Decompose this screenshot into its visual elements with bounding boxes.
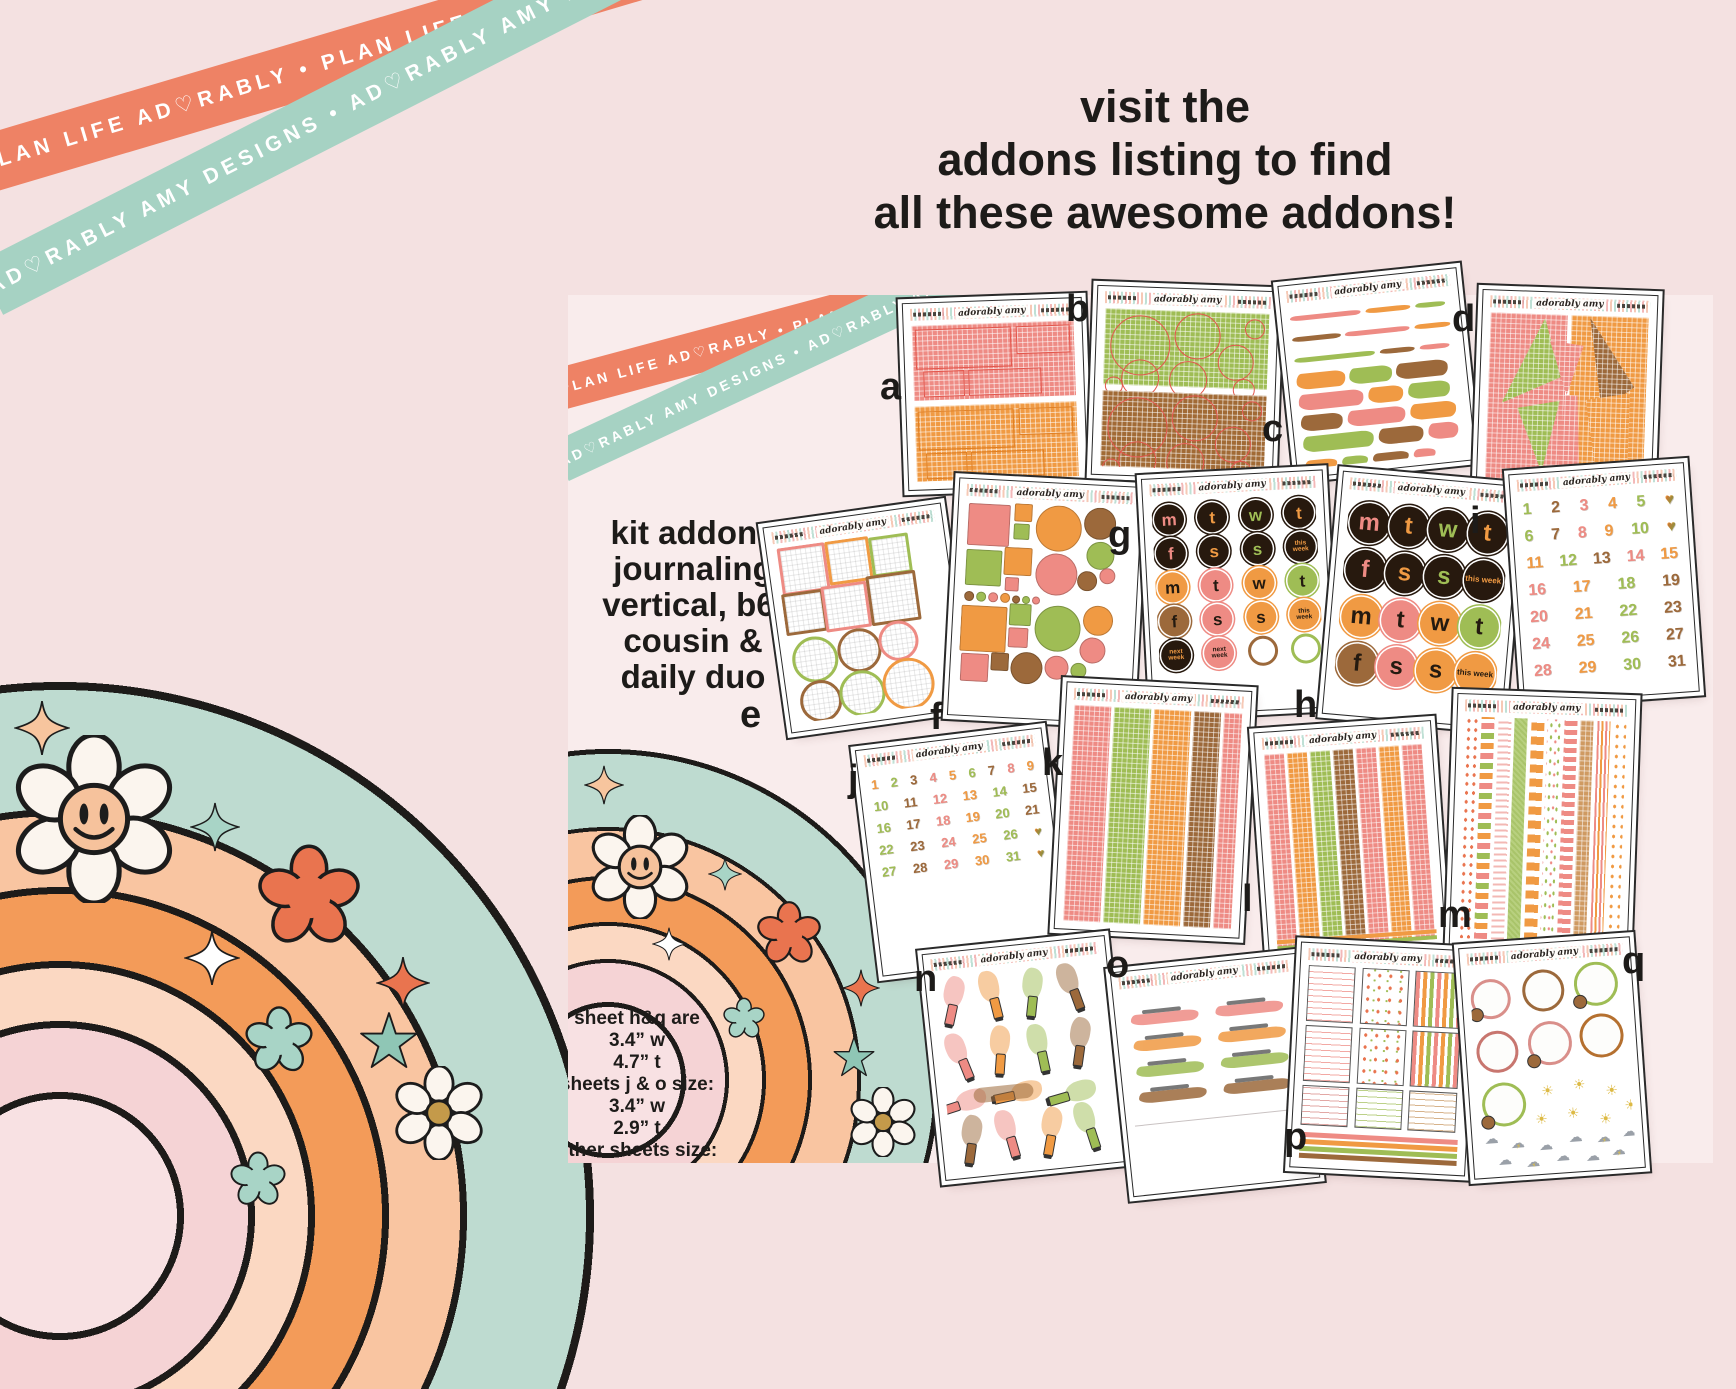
box-outline: [1015, 325, 1070, 354]
date-number: 8: [1577, 524, 1587, 543]
shape-sticker: [959, 605, 1007, 653]
swash-label: [1142, 1006, 1182, 1014]
brand-logo: adorably amy: [1122, 692, 1196, 705]
pen-tip: [1042, 1070, 1051, 1076]
date-number: 7: [987, 762, 996, 778]
date-number: 1: [1522, 500, 1532, 519]
sun-icon: ☀: [1535, 1111, 1549, 1126]
sticker-sheet-b: adorably amy: [1091, 285, 1280, 481]
sun-icon: ☀: [1599, 1111, 1613, 1126]
date-number: 9: [1026, 757, 1035, 773]
sheet-label-a: a: [880, 368, 901, 406]
date-number: 4: [929, 769, 938, 785]
pen-tip: [1043, 1154, 1052, 1159]
weekday-sticker: m: [1340, 595, 1383, 638]
date-number: 18: [1617, 574, 1636, 593]
sparkle-icon: [376, 956, 430, 1010]
date-number: 15: [1021, 779, 1037, 796]
pen-sticker: [973, 968, 1011, 1025]
swash-sticker: [1215, 1000, 1284, 1018]
kit-box: [1410, 1031, 1460, 1089]
scribble: [1300, 412, 1344, 432]
frame-sticker: [876, 618, 921, 663]
shape-sticker: [1070, 662, 1087, 679]
cloud-icon: ☁: [1585, 1148, 1600, 1163]
weekday-row: fssthis week: [1336, 642, 1497, 696]
flower-icon: [720, 995, 768, 1043]
scribble: [1292, 333, 1341, 343]
wreath-sticker: [1475, 1029, 1520, 1074]
pen-sticker: [1017, 967, 1048, 1021]
shape-sticker: [1004, 577, 1019, 592]
pen-tip: [1012, 1155, 1021, 1161]
date-number: 25: [971, 829, 987, 846]
pen-sticker: [1063, 1016, 1096, 1071]
weekday-sticker: s: [1375, 645, 1418, 688]
date-number: 5: [1636, 492, 1646, 511]
date-number: 27: [881, 863, 897, 880]
stripe-block: [1063, 705, 1242, 929]
shape-sticker: [1079, 637, 1106, 664]
date-number: 13: [962, 786, 978, 803]
shape-sticker: [1014, 503, 1033, 522]
date-number: 11: [903, 794, 918, 811]
pen-sticker: [989, 1107, 1028, 1164]
flower-icon: [240, 1002, 318, 1080]
kit-line-4: cousin &: [578, 623, 808, 659]
shape-sticker: [1010, 651, 1044, 685]
size-line-4: sheets j & o size:: [568, 1074, 737, 1096]
star-icon: [832, 1035, 876, 1079]
heart-icon: ♥: [1664, 490, 1675, 509]
size-line-5: 3.4” w: [568, 1096, 737, 1118]
cut-line: [1135, 1108, 1304, 1127]
swash-label: [1150, 1084, 1190, 1092]
weekday-row: mtwt: [1348, 501, 1509, 555]
flower-icon: [226, 1148, 290, 1212]
scribble: [1379, 346, 1415, 355]
sticker-sheet-p: adorably amy: [1289, 942, 1477, 1177]
date-number: 30: [974, 851, 990, 868]
swash-label: [1147, 1058, 1187, 1066]
scribble: [1305, 457, 1338, 469]
grid-block: [1100, 390, 1267, 472]
sheet-label-c: c: [1262, 410, 1283, 448]
washi-block: [1458, 716, 1627, 943]
pen-tip: [965, 1162, 973, 1167]
date-number: 21: [1574, 604, 1593, 623]
grid-block: [914, 401, 1079, 481]
swash-sticker: [1130, 1008, 1199, 1026]
sheet-label-f: f: [930, 698, 943, 736]
scribble: [1290, 310, 1361, 322]
brand-logo: adorably amy: [1351, 952, 1425, 965]
weekday-sticker: w: [1427, 508, 1470, 551]
shape-sticker: [988, 592, 999, 603]
date-number: 13: [1592, 549, 1611, 568]
pen-tip: [1027, 1015, 1035, 1020]
scribble: [1367, 384, 1404, 404]
sun-icon: ☀: [1541, 1083, 1555, 1098]
weekday-sticker: t: [1197, 501, 1229, 533]
sheet-header: adorably amy: [1105, 291, 1271, 309]
size-line-1: sheet h&q are: [568, 1008, 737, 1030]
date-number: 17: [905, 815, 921, 832]
box-outline: [923, 370, 965, 397]
heart-icon: ♥: [1036, 844, 1045, 860]
date-number: 22: [878, 841, 894, 858]
bear-icon: [1527, 1054, 1542, 1069]
cloud-icon: ☁: [1555, 1148, 1570, 1163]
shape-sticker: [1077, 571, 1098, 592]
sheet-content: [1299, 965, 1467, 1167]
pen-tip: [1077, 1007, 1086, 1013]
sheet-content: [1485, 312, 1649, 489]
daisy-icon: [392, 1066, 486, 1160]
bear-icon: [1469, 1008, 1484, 1023]
sun-icon: ☀: [1605, 1082, 1619, 1097]
kit-line-5: daily duo: [578, 659, 808, 695]
date-number: 15: [1660, 544, 1679, 563]
scribble: [1372, 450, 1408, 464]
scribble: [1407, 379, 1451, 399]
scribble: [1413, 447, 1437, 459]
shape-sticker: [1044, 655, 1069, 680]
scribble: [1294, 350, 1375, 363]
bear-icon: [1573, 994, 1588, 1009]
swash-sticker: [1138, 1086, 1207, 1104]
frame-sticker: [820, 581, 872, 633]
lightning-icon: ⚡: [1531, 1162, 1536, 1169]
date-number: 16: [876, 819, 892, 836]
lightning-icon: ⚡: [1617, 1150, 1622, 1157]
scribble: [1428, 421, 1459, 440]
star-icon: [358, 1010, 420, 1072]
date-number: 31: [1005, 847, 1021, 864]
date-number: 2: [1551, 498, 1561, 517]
torn-base: [1485, 312, 1568, 487]
size-line-8: 4.88” w: [568, 1162, 737, 1163]
dates-block: 12345♥678910♥111213141516171819202122232…: [1519, 486, 1690, 686]
brand-logo: adorably amy: [1014, 488, 1088, 501]
weekday-sticker: m: [1153, 504, 1185, 536]
shape-sticker: [960, 653, 989, 682]
shape-sticker: [1009, 603, 1032, 626]
pen-tip: [944, 1023, 953, 1029]
brand-logo: adorably amy: [1306, 730, 1380, 746]
shape-sticker: [1034, 552, 1078, 596]
weekday-sticker: w: [1243, 567, 1275, 599]
shape-sticker: [964, 591, 975, 602]
lightning-icon: ⚡: [1602, 1137, 1607, 1144]
kit-box: [1300, 1085, 1349, 1127]
pen-tip: [995, 1016, 1004, 1022]
circle-outline: [1217, 344, 1254, 381]
date-number: 20: [994, 804, 1010, 821]
weekday-sticker: next week: [1160, 640, 1192, 672]
sheet-label-o: o: [1106, 946, 1129, 984]
frame-sticker: [865, 570, 921, 626]
daisy-smiley-icon: [588, 815, 692, 919]
weekday-row: fssthis week: [1344, 548, 1505, 602]
sheet-sizes: sheet h&q are 3.4” w 4.7” t sheets j & o…: [568, 1008, 737, 1163]
weekday-sticker: f: [1336, 642, 1379, 685]
brand-logo: adorably amy: [1195, 479, 1269, 494]
sticker-sheet-l: adorably amy: [1253, 720, 1446, 960]
date-number: 19: [1662, 571, 1681, 590]
headline-line-1: visit the: [790, 80, 1540, 133]
scribble: [1298, 388, 1364, 411]
sheet-label-k: k: [1042, 744, 1063, 782]
weekday-sticker: t: [1379, 599, 1422, 642]
kit-box: [1354, 1088, 1403, 1130]
date-number: 7: [1551, 525, 1561, 544]
sheet-content: [1264, 744, 1437, 951]
box-outline: [918, 408, 1015, 451]
brand-logo: adorably amy: [1151, 294, 1225, 305]
date-number: 22: [1619, 601, 1638, 620]
shape-sticker: [1035, 504, 1083, 552]
date-number: 25: [1576, 631, 1595, 650]
kit-box: [1360, 968, 1410, 1026]
weekday-row: mtwt: [1157, 565, 1318, 603]
sparkle-icon: [190, 802, 240, 852]
grid-block: [1103, 308, 1270, 390]
date-number: 12: [932, 790, 948, 807]
shape-sticker: [990, 652, 1009, 671]
sheet-content: [1289, 291, 1467, 469]
shape-sticker: [1008, 627, 1029, 648]
size-line-3: 4.7” t: [568, 1052, 737, 1074]
dates-block: 1234567891011121314151617181920212223242…: [867, 753, 1049, 883]
sticker-sheet-n: adorably amy: [922, 935, 1129, 1181]
frame-sticker: [789, 633, 841, 685]
weekday-row: fssthis week: [1159, 599, 1320, 637]
pen-sticker: [935, 974, 971, 1030]
sticker-sheet-h: adorably amymtwtfssthis weekmtwtfssthis …: [1322, 471, 1523, 730]
kit-box: [1408, 1090, 1457, 1132]
pen-body: [937, 1101, 961, 1117]
weekday-sticker: s: [1414, 649, 1457, 692]
sheet-content: [775, 527, 960, 724]
pen-tip: [1092, 1146, 1101, 1152]
date-number: 10: [1631, 519, 1650, 538]
weekday-sticker: s: [1383, 552, 1426, 595]
date-number: 14: [991, 783, 1007, 800]
date-number: 2: [890, 774, 899, 790]
weekday-sticker: this week: [1285, 531, 1317, 563]
pen-sticker: [1022, 1021, 1058, 1077]
weekday-sticker: this week: [1288, 599, 1320, 631]
kit-box: [1306, 965, 1356, 1023]
sheet-content: ☀☀☀☀☀☀☀☁☁⚡☁☁☁⚡☁☁☁⚡☁☁☁⚡: [1469, 960, 1637, 1170]
sheet-content: [1121, 977, 1310, 1188]
wreath-sticker: [1578, 1012, 1625, 1059]
scribble: [1410, 400, 1457, 421]
circle-outline: [1174, 313, 1222, 361]
weekday-sticker: this week: [1462, 559, 1505, 602]
date-number: 28: [1533, 661, 1552, 680]
box-outline: [971, 449, 1045, 477]
size-line-6: 2.9” t: [568, 1118, 737, 1140]
weekday-sticker: w: [1418, 602, 1461, 645]
sheet-label-h: h: [1294, 686, 1317, 724]
date-number: 3: [909, 771, 918, 787]
frame-sticker: [797, 677, 844, 723]
weekday-sticker: s: [1422, 555, 1465, 598]
sheet-label-m: m: [1438, 896, 1472, 934]
sticker-sheet-a: adorably amy: [902, 297, 1088, 491]
grid-block: [912, 320, 1077, 400]
weekday-sticker: s: [1198, 535, 1230, 567]
brand-logo: adorably amy: [1560, 472, 1634, 488]
scribble: [1296, 369, 1346, 390]
scribble: [1396, 358, 1449, 379]
swash-label: [1229, 1023, 1269, 1031]
date-number: 27: [1665, 625, 1684, 644]
headline-line-2: addons listing to find: [790, 133, 1540, 186]
sheet-header: adorably amy: [1490, 295, 1650, 313]
kit-box: [1413, 971, 1463, 1029]
scribble: [1414, 321, 1450, 330]
swash-label: [1145, 1032, 1185, 1040]
brand-logo: adorably amy: [1395, 483, 1469, 498]
swash-sticker: [1136, 1060, 1205, 1078]
brand-logo: adorably amy: [1508, 946, 1582, 962]
date-number: 9: [1604, 522, 1614, 541]
weekday-sticker: f: [1155, 538, 1187, 570]
sticker-sheet-i: adorably amy12345♥678910♥111213141516171…: [1508, 462, 1700, 704]
sun-icon: ☀: [1572, 1077, 1586, 1092]
sheet-content: 1234567891011121314151617181920212223242…: [867, 751, 1060, 966]
weekday-row: fssthis week: [1155, 531, 1316, 569]
date-number: 5: [948, 767, 957, 783]
date-number: 28: [912, 859, 928, 876]
shape-sticker: [1099, 568, 1116, 585]
weekday-sticker: next week: [1204, 637, 1236, 669]
weekday-sticker: t: [1387, 505, 1430, 548]
box-outline: [968, 368, 1042, 396]
sheet-label-n: n: [914, 960, 937, 998]
daisy-smiley-icon: [10, 735, 178, 903]
box-outline: [1018, 406, 1073, 435]
sheet-content: [933, 959, 1119, 1171]
scribble: [1349, 364, 1393, 384]
cloud-icon: ☁: [1484, 1131, 1499, 1146]
bear-icon: [1481, 1115, 1496, 1130]
sheet-content: [912, 320, 1079, 482]
weekday-sticker: s: [1245, 601, 1277, 633]
pen-sticker: [939, 1029, 983, 1087]
date-number: 17: [1572, 577, 1591, 596]
date-number: 19: [965, 808, 981, 825]
weekday-sticker: this week: [1454, 652, 1497, 695]
pen-tip: [1073, 1065, 1081, 1070]
date-number: 20: [1530, 608, 1549, 627]
kit-box: [1356, 1028, 1406, 1086]
sparkle-icon: [652, 927, 686, 961]
shape-sticker: [1013, 523, 1030, 540]
date-number: 8: [1006, 760, 1015, 776]
sheet-header: adorably amy: [1465, 699, 1628, 717]
headline: visit the addons listing to find all the…: [790, 80, 1540, 239]
date-number: 18: [935, 812, 951, 829]
shape-sticker: [1082, 605, 1114, 637]
brand-logo: adorably amy: [1331, 279, 1405, 298]
weekday-sticker: w: [1240, 499, 1272, 531]
weekday-row: mtwt: [1153, 497, 1314, 535]
brand-logo: adorably amy: [1167, 965, 1241, 984]
weekday-sticker: s: [1202, 603, 1234, 635]
date-number: 10: [873, 797, 889, 814]
date-number: 24: [940, 833, 956, 850]
sparkle-icon: [584, 765, 624, 805]
date-number: 31: [1667, 652, 1686, 671]
swash-sticker: [1223, 1077, 1292, 1095]
weekday-sticker: t: [1458, 605, 1501, 648]
sheet-label-q: q: [1622, 942, 1645, 980]
shape-sticker: [1032, 596, 1040, 604]
date-number: 3: [1579, 496, 1589, 515]
cloud-icon: ☁: [1622, 1123, 1636, 1138]
frame-sticker: [836, 667, 888, 719]
headline-line-3: all these awesome addons!: [790, 186, 1540, 239]
swash-sticker: [1133, 1034, 1202, 1052]
pen-sticker: [1051, 959, 1093, 1017]
weekday-sticker: [1290, 633, 1322, 665]
sparkle-icon: [842, 969, 880, 1007]
circle-outline: [1102, 458, 1121, 471]
sun-icon: ☀: [1624, 1097, 1636, 1112]
wreath-sticker: [1521, 968, 1566, 1013]
sheet-label-p: p: [1284, 1118, 1307, 1156]
product-graphic: PLAN LIFE AD♡RABLY • PLAN LIFE AD♡RABLY …: [0, 0, 1736, 1389]
cloud-icon: ☁: [1539, 1137, 1554, 1152]
size-line-2: 3.4” w: [568, 1030, 737, 1052]
date-number: 6: [1524, 527, 1534, 546]
circle-outline: [1214, 426, 1251, 463]
sparkle-icon: [708, 857, 742, 891]
scribble: [1302, 429, 1375, 452]
sun-icon: ☀: [1566, 1105, 1580, 1120]
sheet-content: 12345♥678910♥111213141516171819202122232…: [1519, 486, 1690, 695]
pen-sticker: [1034, 1105, 1069, 1161]
scribble: [1415, 301, 1445, 309]
box-outline: [926, 452, 968, 479]
sticker-sheet-g: adorably amymtwtfssthis weekmtwtfssthis …: [1141, 469, 1335, 716]
sheet-label-d: d: [1452, 300, 1475, 338]
circle-outline: [1171, 395, 1219, 443]
sheet-label-j: j: [848, 760, 859, 798]
sheet-content: mtwtfssthis weekmtwtfssthis week: [1331, 494, 1511, 719]
sheet-content: [1458, 716, 1627, 943]
heart-icon: ♥: [1033, 823, 1042, 839]
date-number: 21: [1024, 801, 1040, 818]
flower-icon: [250, 838, 368, 956]
date-number: 23: [1663, 598, 1682, 617]
weekday-sticker: t: [1283, 497, 1315, 529]
weekday-sticker: [1247, 635, 1279, 667]
sheet-header: adorably amy: [910, 303, 1074, 321]
pen-sticker: [955, 1114, 988, 1169]
sheet-label-b: b: [1066, 290, 1089, 328]
sheet-content: [1063, 705, 1242, 929]
date-number: 23: [909, 837, 925, 854]
scribble: [1378, 424, 1425, 445]
scribble: [1347, 405, 1407, 427]
sticker-sheet-q: adorably amy☀☀☀☀☀☀☀☁☁⚡☁☁☁⚡☁☁☁⚡☁☁☁⚡: [1458, 936, 1646, 1179]
date-number: 29: [1578, 658, 1597, 677]
